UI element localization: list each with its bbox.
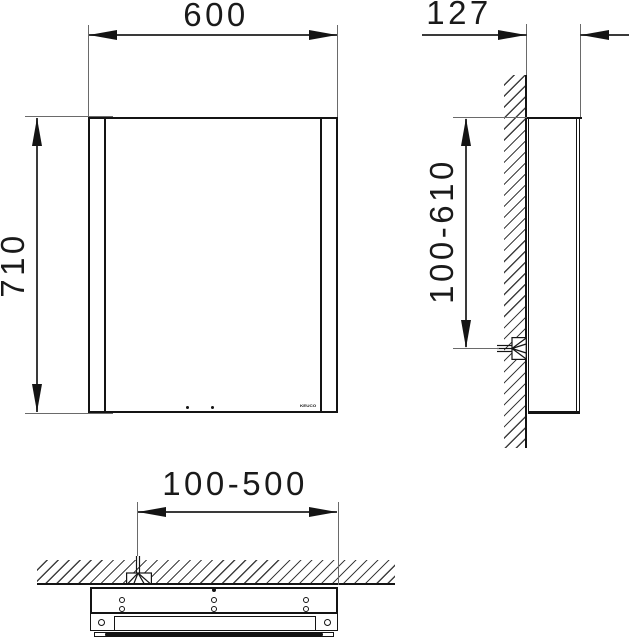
arrow-right-icon xyxy=(309,507,337,517)
arrow-left-icon xyxy=(138,507,166,517)
extension-line xyxy=(338,502,339,585)
dimension-line xyxy=(138,511,337,512)
technical-drawing-canvas: KEUCO 600 710 xyxy=(0,0,629,640)
dimension-label-bottom-range: 100-500 xyxy=(155,467,315,501)
dimension-bottom-mount-range: 100-500 xyxy=(0,0,629,640)
